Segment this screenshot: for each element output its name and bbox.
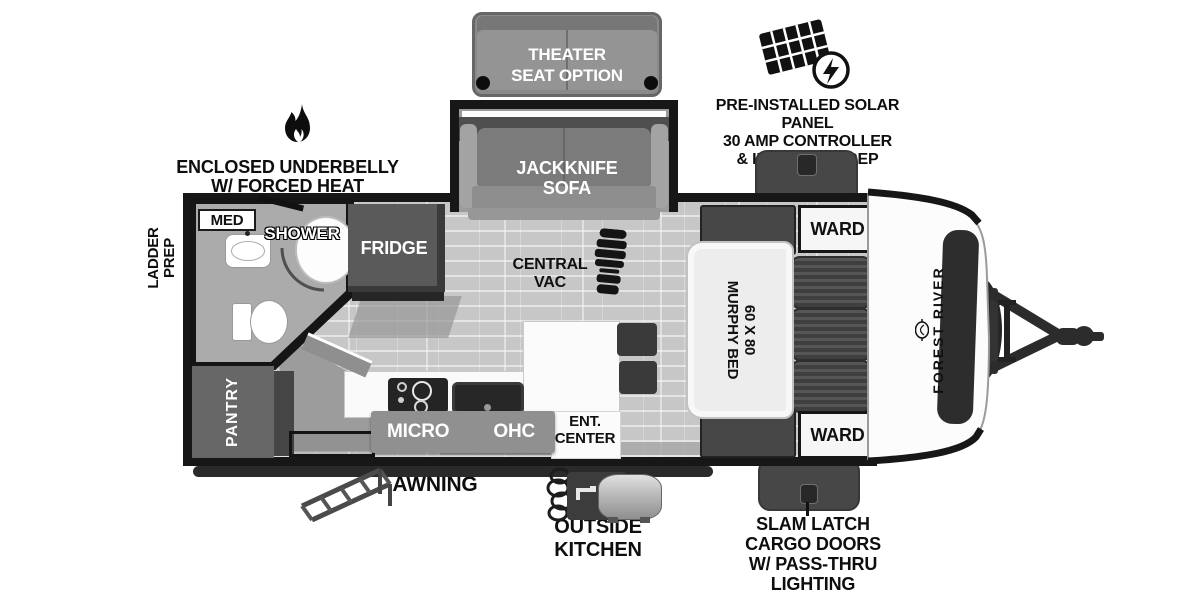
murphy-bed-label: 60 X 80 MURPHY BED	[707, 250, 775, 410]
shower-label: SHOWER	[256, 224, 348, 244]
ward-label: WARD	[810, 425, 864, 446]
micro-ohc-cabinet: MICRO OHC	[371, 411, 555, 453]
jackknife-sofa-label: JACKKNIFE SOFA	[500, 158, 634, 198]
callout-slam-latch: SLAM LATCH CARGO DOORS W/ PASS-THRU LIGH…	[733, 514, 893, 594]
pantry-label: PANTRY	[218, 367, 248, 457]
rv-floorplan-canvas: MED SHOWER FRIDGE PANTRY MICRO OHC ENT. …	[0, 0, 1200, 600]
kitchen-sink-drain	[484, 404, 491, 411]
central-vac-label: CENTRAL VAC	[508, 256, 592, 291]
ward-label: WARD	[810, 219, 864, 240]
fridge-base	[352, 292, 444, 301]
cargo-door-top-latch-icon	[797, 154, 817, 176]
callout-underbelly: ENCLOSED UNDERBELLY W/ FORCED HEAT	[150, 158, 425, 196]
griddle-tank	[598, 474, 662, 520]
forest-river-emblem-icon	[915, 317, 929, 343]
shower-door-arc	[276, 242, 330, 296]
fridge-label: FRIDGE	[350, 238, 438, 259]
brand-label: FOREST RIVER	[930, 266, 946, 393]
tank-foot	[608, 517, 618, 523]
ottoman	[617, 323, 657, 356]
cooktop-burners-icon	[388, 378, 448, 413]
kitchen-island	[523, 321, 620, 416]
micro-label: MICRO	[387, 421, 449, 443]
brand-mark: FOREST RIVER	[912, 240, 948, 420]
theater-seat-label: THEATER SEAT OPTION	[487, 44, 647, 86]
toilet-tank	[232, 303, 252, 341]
faucet-icon	[245, 231, 250, 236]
solar-panel-icon	[755, 14, 865, 98]
tank-foot	[640, 517, 650, 523]
bathroom-sink-basin	[231, 241, 265, 261]
entry-steps	[284, 450, 396, 522]
cargo-door-latch-stem	[806, 502, 809, 516]
boot-print-icon	[589, 228, 631, 299]
toilet-bowl	[250, 300, 288, 344]
ottoman	[619, 361, 657, 394]
sofa-seat-front	[468, 208, 660, 220]
med-label: MED	[211, 212, 244, 229]
med-cabinet: MED	[198, 209, 256, 231]
cargo-door-bottom-latch-icon	[800, 484, 818, 504]
flame-icon	[280, 104, 322, 158]
ent-center-label: ENT. CENTER	[549, 414, 621, 447]
floor-shadow	[348, 296, 462, 338]
ohc-label: OHC	[493, 421, 535, 443]
